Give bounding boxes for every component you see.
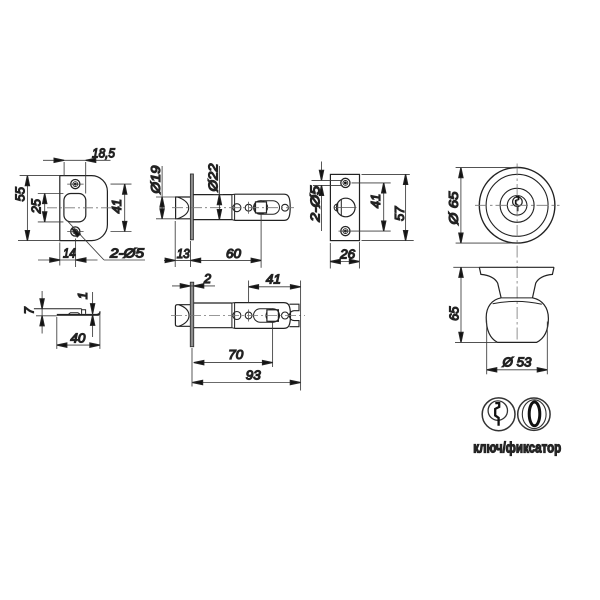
svg-text:2: 2 bbox=[203, 271, 212, 286]
svg-text:Ø 53: Ø 53 bbox=[501, 354, 532, 369]
svg-text:2-Ø5: 2-Ø5 bbox=[109, 246, 145, 261]
svg-text:65: 65 bbox=[447, 306, 462, 321]
svg-text:14: 14 bbox=[63, 245, 76, 260]
svg-text:40: 40 bbox=[70, 331, 86, 346]
svg-text:26: 26 bbox=[339, 246, 356, 261]
svg-text:2-Ø5: 2-Ø5 bbox=[307, 185, 322, 223]
svg-text:70: 70 bbox=[228, 347, 244, 362]
svg-text:Ø 65: Ø 65 bbox=[446, 191, 461, 226]
svg-text:Ø22: Ø22 bbox=[205, 163, 220, 193]
svg-text:60: 60 bbox=[226, 246, 242, 261]
svg-text:ключ/фиксатор: ключ/фиксатор bbox=[473, 440, 561, 456]
svg-text:93: 93 bbox=[246, 367, 262, 382]
svg-text:25: 25 bbox=[28, 198, 43, 214]
svg-text:41: 41 bbox=[368, 194, 383, 208]
svg-text:1: 1 bbox=[75, 292, 90, 299]
svg-text:57: 57 bbox=[392, 206, 407, 221]
svg-text:18,5: 18,5 bbox=[92, 146, 116, 161]
svg-text:13: 13 bbox=[177, 246, 191, 261]
svg-text:Ø19: Ø19 bbox=[148, 166, 163, 195]
svg-text:7: 7 bbox=[21, 306, 36, 314]
svg-text:41: 41 bbox=[109, 199, 124, 213]
svg-text:55: 55 bbox=[12, 186, 27, 201]
svg-text:41: 41 bbox=[266, 272, 281, 287]
